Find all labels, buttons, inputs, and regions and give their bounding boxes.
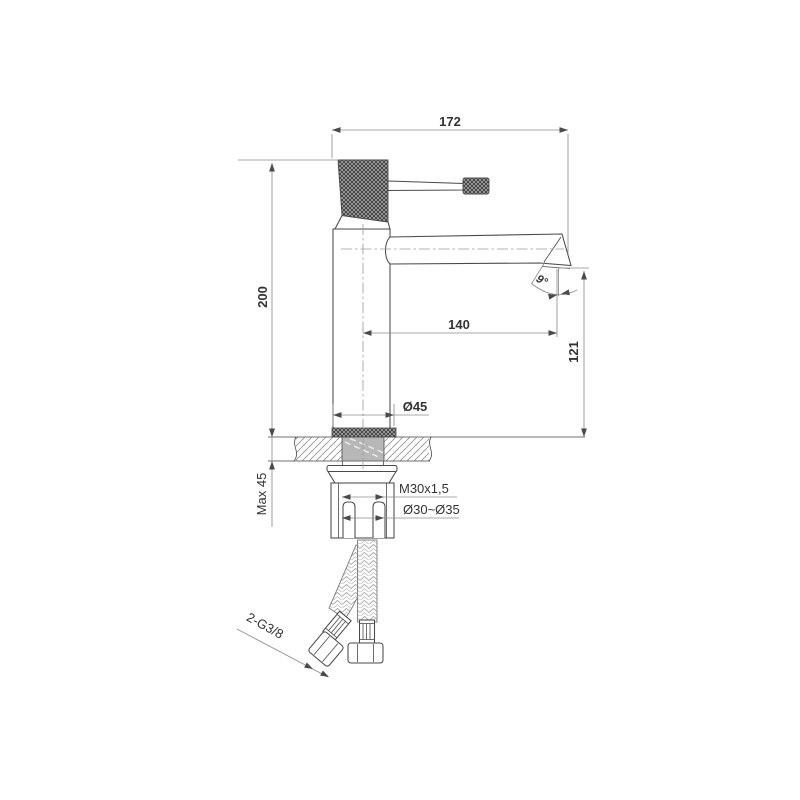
dim-121-label: 121 (566, 341, 581, 363)
deck-hatch-left (296, 438, 342, 461)
faucet-body (332, 160, 571, 472)
handle-knurled-knob (338, 160, 388, 222)
mounting-hardware (327, 461, 397, 538)
hose-straight (358, 540, 378, 622)
hose-straight-nut (348, 643, 383, 663)
faucet-column (333, 229, 390, 430)
handle-lever-tip (463, 178, 489, 194)
spout (386, 234, 572, 266)
supply-hoses (308, 540, 383, 667)
handle-lever-arm (388, 181, 464, 191)
hose-connections-label: 2-G3/8 (244, 609, 286, 641)
dim-140-label: 140 (448, 317, 470, 332)
mounting-deck (268, 437, 585, 461)
nut-slot-right (373, 502, 385, 538)
dimension-overall-height: 200 (238, 160, 337, 437)
deck-hatch-right (384, 438, 429, 461)
dim-200-label: 200 (255, 286, 270, 308)
base-flange (332, 428, 396, 437)
dim-max-thickness-label: Max 45 (254, 473, 269, 516)
mounting-washer (327, 466, 397, 472)
hole-range-label: Ø30~Ø35 (403, 502, 460, 517)
dimension-max-thickness: Max 45 (254, 429, 275, 528)
thread-label: M30x1,5 (399, 481, 449, 496)
mounting-cone (328, 472, 396, 484)
dimension-spout-reach: 140 (363, 269, 557, 337)
dim-base-diameter-label: Ø45 (403, 399, 428, 414)
deck-break-right (429, 437, 432, 461)
dim-172-label: 172 (439, 114, 461, 129)
faucet-technical-drawing: 172 200 140 121 Ø45 Max 45 (0, 0, 800, 800)
